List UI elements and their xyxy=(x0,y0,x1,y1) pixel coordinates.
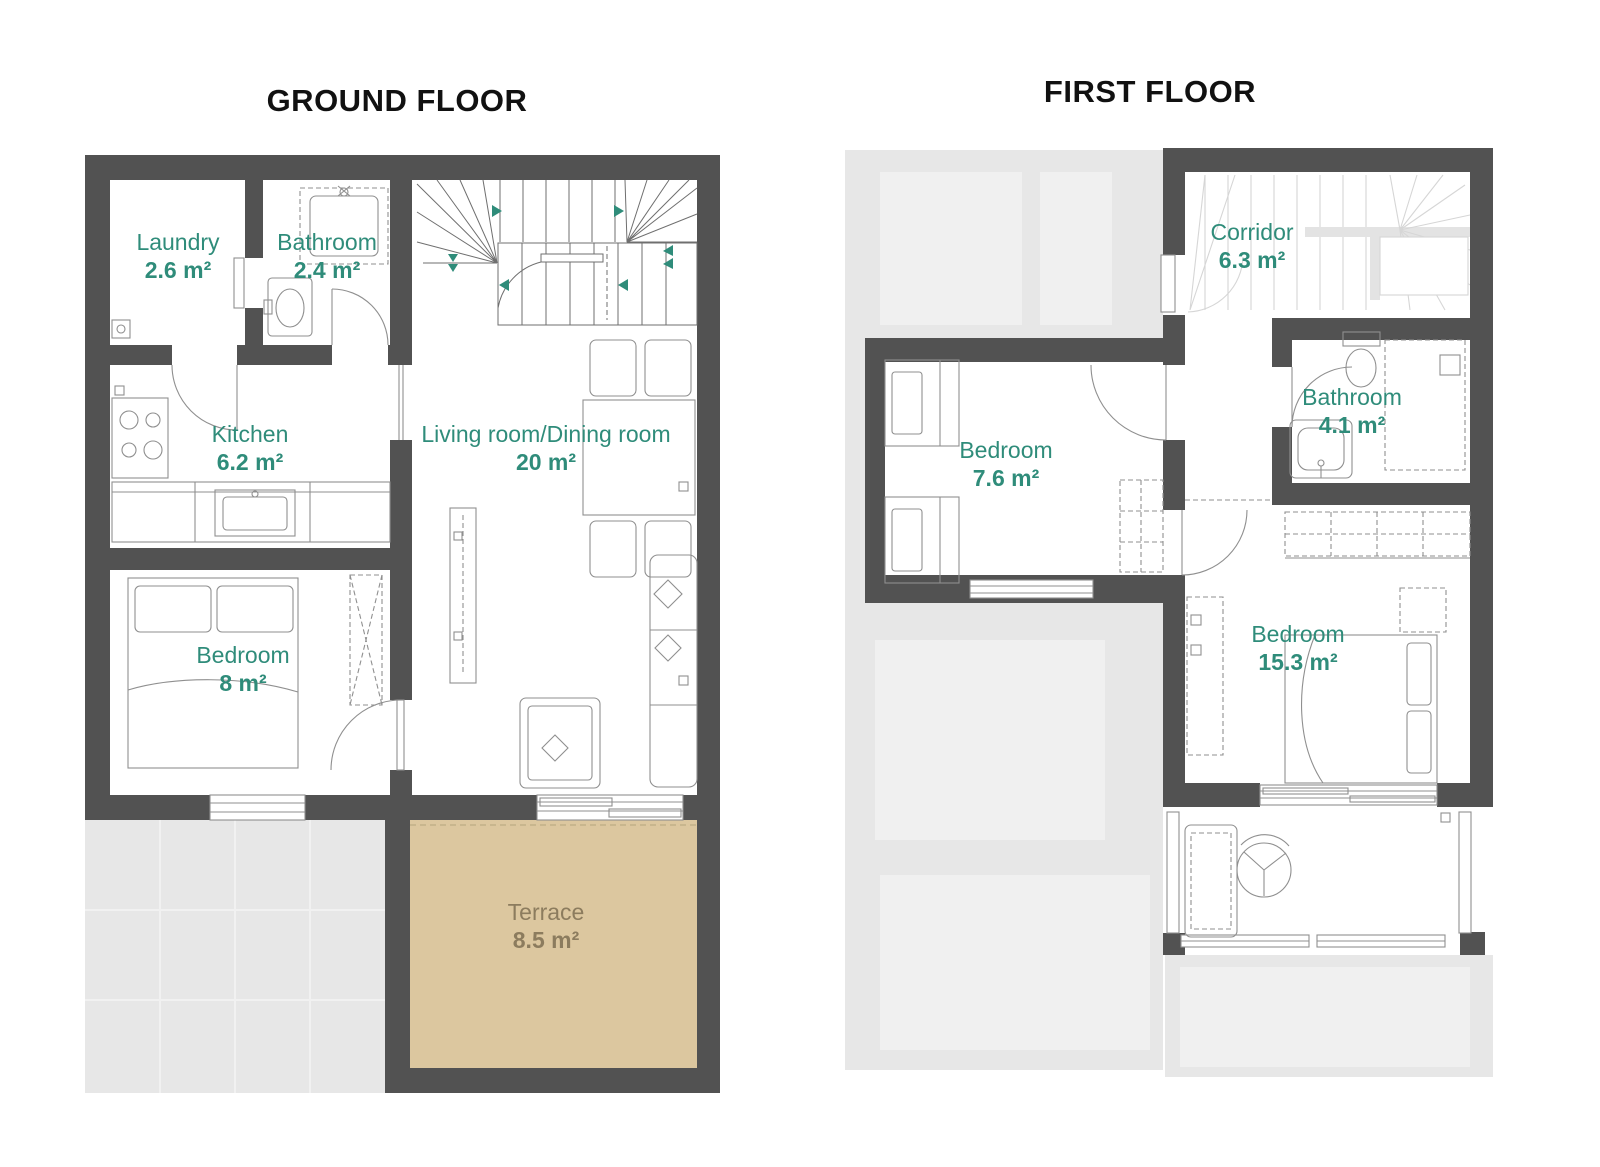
sink-icon xyxy=(264,278,312,336)
room-area: 7.6 m² xyxy=(959,464,1052,492)
room-label-bedroom-ground: Bedroom 8 m² xyxy=(196,641,289,697)
first-floor-plan xyxy=(845,145,1495,1080)
room-area: 4.1 m² xyxy=(1302,411,1402,439)
balcony-sliding-door-icon xyxy=(1260,785,1437,805)
room-name: Terrace xyxy=(508,898,585,926)
first-floor-title: FIRST FLOOR xyxy=(1044,74,1256,110)
room-area: 2.4 m² xyxy=(277,256,377,284)
laundry-door-icon xyxy=(234,258,244,308)
room-label-terrace: Terrace 8.5 m² xyxy=(508,898,585,954)
room-area: 20 m² xyxy=(421,448,670,476)
ground-floor-plan xyxy=(85,150,720,1093)
ground-exterior-paving xyxy=(85,820,385,1093)
bedroom-door-icon xyxy=(331,700,404,770)
room-name: Bedroom xyxy=(1251,620,1344,648)
room-area: 8.5 m² xyxy=(508,926,585,954)
floor-plan-canvas: GROUND FLOOR xyxy=(0,0,1600,1167)
room-label-laundry: Laundry 2.6 m² xyxy=(136,228,219,284)
kitchen-opening xyxy=(399,365,403,440)
room-label-living-room: Living room/Dining room 20 m² xyxy=(421,420,670,476)
room-name: Living room/Dining room xyxy=(421,420,670,448)
room-name: Bedroom xyxy=(959,436,1052,464)
room-area: 6.2 m² xyxy=(212,448,289,476)
room-label-corridor: Corridor 6.3 m² xyxy=(1210,218,1293,274)
room-label-bathroom-first: Bathroom 4.1 m² xyxy=(1302,383,1402,439)
bedroom-small-window-icon xyxy=(970,580,1093,598)
ground-floor-title: GROUND FLOOR xyxy=(267,83,528,119)
room-label-bedroom-small: Bedroom 7.6 m² xyxy=(959,436,1052,492)
room-name: Kitchen xyxy=(212,420,289,448)
room-name: Bathroom xyxy=(277,228,377,256)
kitchen-counter-icon xyxy=(112,482,390,542)
room-label-bathroom-ground: Bathroom 2.4 m² xyxy=(277,228,377,284)
sofa-icon xyxy=(520,555,697,788)
room-area: 6.3 m² xyxy=(1210,246,1293,274)
room-area: 8 m² xyxy=(196,669,289,697)
corridor-door-icon xyxy=(1161,255,1175,312)
bedroom-window-icon xyxy=(210,795,305,820)
room-area: 15.3 m² xyxy=(1251,648,1344,676)
room-name: Bedroom xyxy=(196,641,289,669)
bathroom-door-icon xyxy=(332,289,388,345)
washing-machine-icon xyxy=(112,320,130,338)
stove-icon xyxy=(112,398,168,478)
balcony-interior xyxy=(1163,805,1493,955)
room-area: 2.6 m² xyxy=(136,256,219,284)
room-label-kitchen: Kitchen 6.2 m² xyxy=(212,420,289,476)
wardrobe-icon xyxy=(350,575,382,705)
tv-cabinet-icon xyxy=(450,508,476,683)
stairs-icon xyxy=(417,180,697,325)
terrace-sliding-door-icon xyxy=(537,795,683,820)
room-name: Bathroom xyxy=(1302,383,1402,411)
room-name: Laundry xyxy=(136,228,219,256)
room-label-bedroom-large: Bedroom 15.3 m² xyxy=(1251,620,1344,676)
room-name: Corridor xyxy=(1210,218,1293,246)
